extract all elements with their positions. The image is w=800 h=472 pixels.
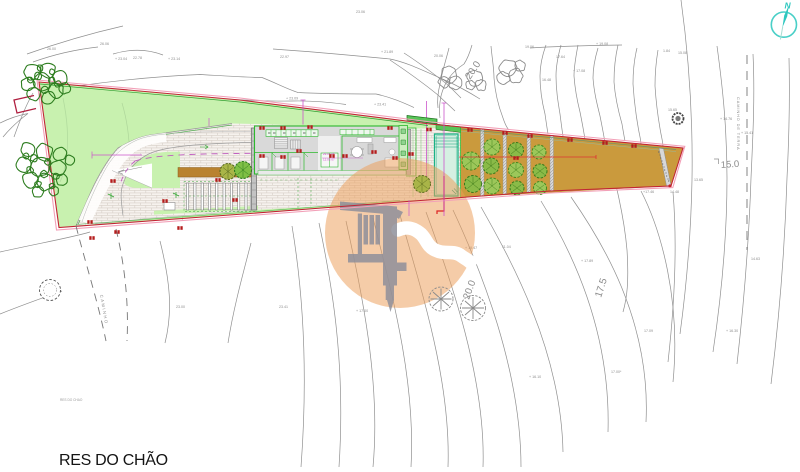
svg-text:14.63: 14.63 (751, 257, 760, 261)
svg-text:20.06: 20.06 (434, 54, 443, 58)
svg-text:26.00: 26.00 (47, 47, 56, 51)
svg-text:+ 14.76: + 14.76 (720, 117, 732, 121)
svg-text:11.04: 11.04 (502, 245, 511, 249)
svg-text:RES DO CHAO: RES DO CHAO (60, 398, 83, 402)
svg-text:1.84: 1.84 (663, 49, 670, 53)
svg-text:23.00: 23.00 (176, 305, 185, 309)
svg-text:+ 17.08: + 17.08 (573, 69, 585, 73)
svg-text:+ 17.89: + 17.89 (581, 259, 593, 263)
svg-text:15.65: 15.65 (668, 108, 677, 112)
svg-text:+ 16.10: + 16.10 (529, 375, 541, 379)
svg-text:+ 21.89: + 21.89 (381, 50, 393, 54)
svg-text:+ 23.04: + 23.04 (115, 57, 127, 61)
svg-text:CAMINHO DE TERRA: CAMINHO DE TERRA (736, 97, 741, 150)
svg-text:RES DO CHÃO: RES DO CHÃO (59, 449, 168, 467)
svg-text:23.41: 23.41 (279, 305, 288, 309)
svg-text:+17.46: +17.46 (643, 190, 654, 194)
svg-text:16.48: 16.48 (542, 78, 551, 82)
svg-text:15.08: 15.08 (678, 51, 687, 55)
svg-text:14.48: 14.48 (670, 190, 679, 194)
svg-text:+ 16.30: + 16.30 (726, 329, 738, 333)
svg-text:19.06: 19.06 (525, 45, 534, 49)
svg-text:+ 23.41: + 23.41 (374, 103, 386, 107)
svg-text:23.06: 23.06 (356, 10, 365, 14)
svg-text:22.78: 22.78 (133, 56, 142, 60)
svg-text:26.06: 26.06 (100, 42, 109, 46)
svg-text:13.65: 13.65 (694, 178, 703, 182)
svg-text:22.97: 22.97 (280, 55, 289, 59)
svg-text:17.64: 17.64 (556, 55, 565, 59)
svg-text:+ 15.41: + 15.41 (741, 131, 753, 135)
svg-text:N: N (785, 1, 792, 11)
svg-text:17.00*: 17.00* (611, 370, 622, 374)
svg-text:+ 17.00: + 17.00 (356, 309, 368, 313)
svg-text:17.09: 17.09 (644, 329, 653, 333)
svg-text:+ 23.09: + 23.09 (286, 97, 298, 101)
svg-text:+ 23.14: + 23.14 (168, 57, 180, 61)
svg-text:15.0: 15.0 (720, 159, 739, 171)
svg-text:+ 19.08: + 19.08 (596, 42, 608, 46)
